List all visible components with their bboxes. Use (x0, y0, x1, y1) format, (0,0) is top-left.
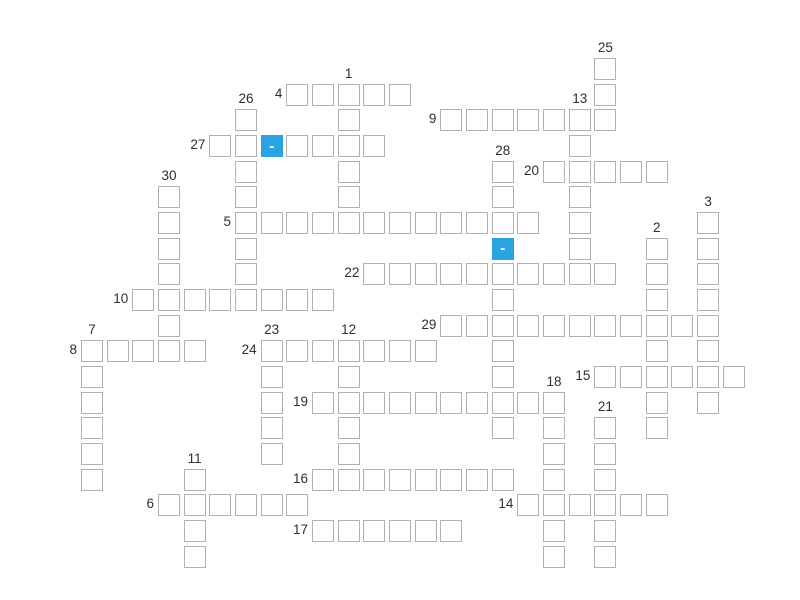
answer-cell[interactable] (466, 212, 488, 234)
answer-cell[interactable] (543, 417, 565, 439)
answer-cell[interactable] (492, 289, 514, 311)
answer-cell[interactable] (286, 340, 308, 362)
answer-cell[interactable] (184, 469, 206, 491)
answer-cell[interactable] (543, 520, 565, 542)
answer-cell[interactable] (620, 494, 642, 516)
answer-cell[interactable] (363, 135, 385, 157)
answer-cell[interactable] (697, 315, 719, 337)
answer-cell[interactable] (646, 340, 668, 362)
answer-cell[interactable] (723, 366, 745, 388)
highlighted-answer-cell[interactable]: - (492, 238, 514, 260)
answer-cell[interactable] (209, 289, 231, 311)
answer-cell[interactable] (338, 520, 360, 542)
answer-cell[interactable] (184, 494, 206, 516)
answer-cell[interactable] (697, 366, 719, 388)
answer-cell[interactable] (389, 520, 411, 542)
clue-number-8: 8 (37, 342, 77, 357)
answer-cell[interactable] (338, 469, 360, 491)
answer-cell[interactable] (235, 161, 257, 183)
clue-number-30: 30 (149, 168, 189, 183)
highlighted-answer-cell[interactable]: - (261, 135, 283, 157)
answer-cell[interactable] (569, 212, 591, 234)
answer-cell[interactable] (363, 520, 385, 542)
answer-cell[interactable] (158, 289, 180, 311)
answer-cell[interactable] (543, 263, 565, 285)
answer-cell[interactable] (338, 366, 360, 388)
answer-cell[interactable] (594, 263, 616, 285)
answer-cell[interactable] (543, 494, 565, 516)
answer-cell[interactable] (440, 212, 462, 234)
clue-number-24: 24 (217, 342, 257, 357)
answer-cell[interactable] (158, 186, 180, 208)
answer-cell[interactable] (415, 469, 437, 491)
clue-number-7: 7 (72, 322, 112, 337)
answer-cell[interactable] (235, 135, 257, 157)
answer-cell[interactable] (235, 212, 257, 234)
crossword-board: --12345678910111213141516171819202122232… (0, 0, 800, 600)
answer-cell[interactable] (492, 392, 514, 414)
answer-cell[interactable] (184, 340, 206, 362)
answer-cell[interactable] (209, 135, 231, 157)
answer-cell[interactable] (543, 469, 565, 491)
clue-number-26: 26 (226, 91, 266, 106)
answer-cell[interactable] (440, 109, 462, 131)
clue-number-10: 10 (88, 291, 128, 306)
answer-cell[interactable] (492, 263, 514, 285)
answer-cell[interactable] (440, 520, 462, 542)
answer-cell[interactable] (646, 392, 668, 414)
answer-cell[interactable] (184, 289, 206, 311)
answer-cell[interactable] (569, 186, 591, 208)
answer-cell[interactable] (338, 84, 360, 106)
answer-cell[interactable] (594, 520, 616, 542)
clue-number-16: 16 (268, 471, 308, 486)
clue-number-27: 27 (165, 137, 205, 152)
answer-cell[interactable] (158, 263, 180, 285)
answer-cell[interactable] (517, 109, 539, 131)
clue-number-9: 9 (396, 111, 436, 126)
answer-cell[interactable] (286, 135, 308, 157)
answer-cell[interactable] (594, 161, 616, 183)
answer-cell[interactable] (235, 263, 257, 285)
answer-cell[interactable] (389, 340, 411, 362)
answer-cell[interactable] (158, 340, 180, 362)
clue-number-22: 22 (319, 265, 359, 280)
clue-number-2: 2 (637, 220, 677, 235)
answer-cell[interactable] (338, 443, 360, 465)
answer-cell[interactable] (312, 289, 334, 311)
answer-cell[interactable] (312, 520, 334, 542)
answer-cell[interactable] (466, 392, 488, 414)
answer-cell[interactable] (594, 315, 616, 337)
clue-number-13: 13 (560, 91, 600, 106)
answer-cell[interactable] (646, 315, 668, 337)
answer-cell[interactable] (312, 135, 334, 157)
answer-cell[interactable] (569, 135, 591, 157)
answer-cell[interactable] (338, 109, 360, 131)
clue-number-17: 17 (268, 522, 308, 537)
answer-cell[interactable] (517, 263, 539, 285)
answer-cell[interactable] (646, 263, 668, 285)
answer-cell[interactable] (261, 494, 283, 516)
answer-cell[interactable] (569, 315, 591, 337)
clue-number-11: 11 (175, 451, 215, 466)
answer-cell[interactable] (261, 340, 283, 362)
answer-cell[interactable] (569, 263, 591, 285)
answer-cell[interactable] (415, 392, 437, 414)
answer-cell[interactable] (363, 469, 385, 491)
answer-cell[interactable] (107, 340, 129, 362)
answer-cell[interactable] (517, 315, 539, 337)
answer-cell[interactable] (235, 238, 257, 260)
answer-cell[interactable] (543, 315, 565, 337)
answer-cell[interactable] (569, 161, 591, 183)
answer-cell[interactable] (569, 238, 591, 260)
answer-cell[interactable] (620, 161, 642, 183)
answer-cell[interactable] (184, 520, 206, 542)
answer-cell[interactable] (697, 263, 719, 285)
answer-cell[interactable] (312, 84, 334, 106)
answer-cell[interactable] (235, 109, 257, 131)
answer-cell[interactable] (312, 340, 334, 362)
answer-cell[interactable] (594, 417, 616, 439)
answer-cell[interactable] (389, 212, 411, 234)
answer-cell[interactable] (646, 366, 668, 388)
answer-cell[interactable] (517, 494, 539, 516)
answer-cell[interactable] (492, 366, 514, 388)
answer-cell[interactable] (389, 469, 411, 491)
answer-cell[interactable] (286, 84, 308, 106)
answer-cell[interactable] (543, 392, 565, 414)
answer-cell[interactable] (671, 315, 693, 337)
answer-cell[interactable] (697, 392, 719, 414)
answer-cell[interactable] (81, 469, 103, 491)
clue-number-18: 18 (534, 374, 574, 389)
answer-cell[interactable] (132, 340, 154, 362)
answer-cell[interactable] (415, 520, 437, 542)
answer-cell[interactable] (312, 212, 334, 234)
answer-cell[interactable] (594, 494, 616, 516)
answer-cell[interactable] (235, 289, 257, 311)
answer-cell[interactable] (312, 392, 334, 414)
answer-cell[interactable] (517, 392, 539, 414)
answer-cell[interactable] (440, 263, 462, 285)
clue-number-5: 5 (191, 214, 231, 229)
answer-cell[interactable] (492, 315, 514, 337)
clue-number-28: 28 (483, 143, 523, 158)
answer-cell[interactable] (492, 212, 514, 234)
answer-cell[interactable] (81, 392, 103, 414)
answer-cell[interactable] (646, 494, 668, 516)
answer-cell[interactable] (338, 212, 360, 234)
answer-cell[interactable] (81, 443, 103, 465)
answer-cell[interactable] (81, 417, 103, 439)
answer-cell[interactable] (646, 238, 668, 260)
answer-cell[interactable] (594, 58, 616, 80)
answer-cell[interactable] (261, 417, 283, 439)
answer-cell[interactable] (594, 546, 616, 568)
clue-number-19: 19 (268, 394, 308, 409)
clue-number-3: 3 (688, 194, 728, 209)
answer-cell[interactable] (594, 109, 616, 131)
answer-cell[interactable] (440, 469, 462, 491)
answer-cell[interactable] (492, 417, 514, 439)
answer-cell[interactable] (543, 109, 565, 131)
answer-cell[interactable] (697, 289, 719, 311)
answer-cell[interactable] (209, 494, 231, 516)
answer-cell[interactable] (286, 494, 308, 516)
answer-cell[interactable] (338, 417, 360, 439)
answer-cell[interactable] (158, 238, 180, 260)
answer-cell[interactable] (389, 263, 411, 285)
answer-cell[interactable] (363, 263, 385, 285)
answer-cell[interactable] (389, 84, 411, 106)
answer-cell[interactable] (235, 494, 257, 516)
answer-cell[interactable] (338, 161, 360, 183)
answer-cell[interactable] (338, 135, 360, 157)
clue-number-6: 6 (114, 496, 154, 511)
answer-cell[interactable] (132, 289, 154, 311)
answer-cell[interactable] (363, 84, 385, 106)
answer-cell[interactable] (363, 212, 385, 234)
answer-cell[interactable] (415, 212, 437, 234)
answer-cell[interactable] (81, 340, 103, 362)
answer-cell[interactable] (492, 186, 514, 208)
answer-cell[interactable] (363, 340, 385, 362)
answer-cell[interactable] (286, 212, 308, 234)
answer-cell[interactable] (158, 212, 180, 234)
answer-cell[interactable] (466, 315, 488, 337)
answer-cell[interactable] (646, 289, 668, 311)
answer-cell[interactable] (671, 366, 693, 388)
answer-cell[interactable] (646, 161, 668, 183)
answer-cell[interactable] (235, 186, 257, 208)
answer-cell[interactable] (569, 494, 591, 516)
answer-cell[interactable] (440, 315, 462, 337)
answer-cell[interactable] (338, 186, 360, 208)
answer-cell[interactable] (415, 340, 437, 362)
answer-cell[interactable] (261, 366, 283, 388)
answer-cell[interactable] (338, 340, 360, 362)
answer-cell[interactable] (286, 289, 308, 311)
answer-cell[interactable] (184, 546, 206, 568)
answer-cell[interactable] (594, 443, 616, 465)
answer-cell[interactable] (492, 469, 514, 491)
answer-cell[interactable] (261, 212, 283, 234)
answer-cell[interactable] (261, 289, 283, 311)
clue-number-12: 12 (329, 322, 369, 337)
clue-number-20: 20 (499, 163, 539, 178)
answer-cell[interactable] (415, 263, 437, 285)
clue-number-21: 21 (585, 399, 625, 414)
answer-cell[interactable] (620, 366, 642, 388)
answer-cell[interactable] (697, 340, 719, 362)
answer-cell[interactable] (440, 392, 462, 414)
answer-cell[interactable] (338, 392, 360, 414)
answer-cell[interactable] (389, 392, 411, 414)
answer-cell[interactable] (543, 161, 565, 183)
answer-cell[interactable] (492, 109, 514, 131)
answer-cell[interactable] (158, 494, 180, 516)
answer-cell[interactable] (697, 212, 719, 234)
answer-cell[interactable] (697, 238, 719, 260)
answer-cell[interactable] (646, 417, 668, 439)
answer-cell[interactable] (312, 469, 334, 491)
answer-cell[interactable] (466, 469, 488, 491)
answer-cell[interactable] (81, 366, 103, 388)
answer-cell[interactable] (543, 546, 565, 568)
answer-cell[interactable] (517, 212, 539, 234)
clue-number-29: 29 (396, 317, 436, 332)
answer-cell[interactable] (594, 469, 616, 491)
clue-number-14: 14 (473, 496, 513, 511)
clue-number-23: 23 (252, 322, 292, 337)
answer-cell[interactable] (569, 109, 591, 131)
answer-cell[interactable] (466, 109, 488, 131)
answer-cell[interactable] (543, 443, 565, 465)
answer-cell[interactable] (594, 366, 616, 388)
answer-cell[interactable] (620, 315, 642, 337)
answer-cell[interactable] (261, 443, 283, 465)
answer-cell[interactable] (466, 263, 488, 285)
answer-cell[interactable] (363, 392, 385, 414)
answer-cell[interactable] (158, 315, 180, 337)
clue-number-1: 1 (329, 66, 369, 81)
answer-cell[interactable] (492, 340, 514, 362)
clue-number-25: 25 (585, 40, 625, 55)
